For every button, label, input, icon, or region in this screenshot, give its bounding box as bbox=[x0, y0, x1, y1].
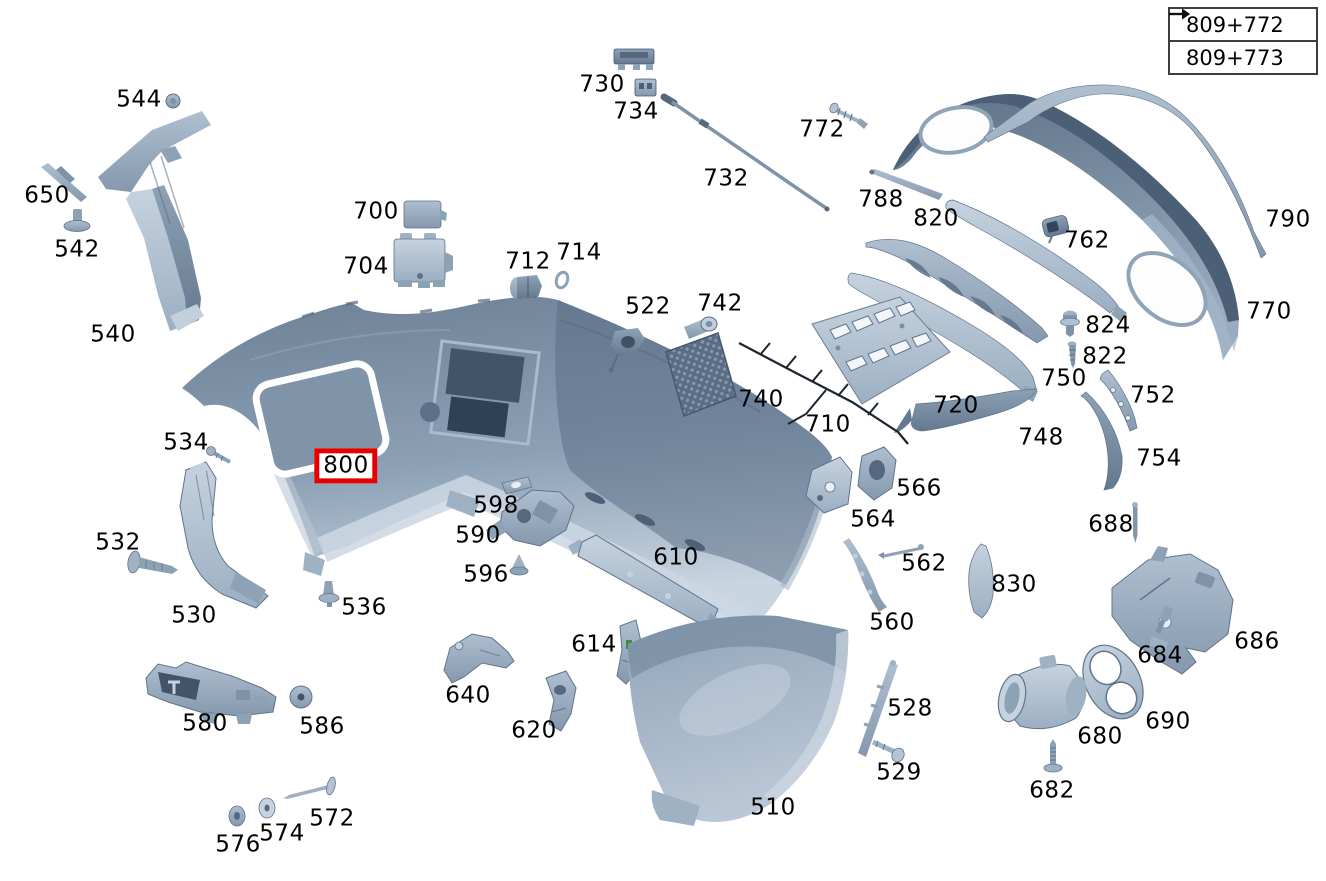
part-label-528[interactable]: 528 bbox=[887, 696, 932, 721]
part-label-522[interactable]: 522 bbox=[625, 294, 670, 319]
part-label-770[interactable]: 770 bbox=[1246, 299, 1291, 324]
part-label-574[interactable]: 574 bbox=[259, 821, 304, 846]
part-824-graphic[interactable] bbox=[1061, 311, 1080, 338]
part-label-510[interactable]: 510 bbox=[750, 795, 795, 820]
part-label-560[interactable]: 560 bbox=[869, 610, 914, 635]
part-label-712[interactable]: 712 bbox=[505, 249, 550, 274]
part-label-788[interactable]: 788 bbox=[858, 187, 903, 212]
part-label-704[interactable]: 704 bbox=[343, 254, 388, 279]
reference-links: 809+772 809+773 bbox=[1168, 7, 1318, 75]
part-label-700[interactable]: 700 bbox=[353, 199, 398, 224]
part-label-529[interactable]: 529 bbox=[876, 760, 921, 785]
arrow-right-icon bbox=[1168, 7, 1192, 21]
part-586-graphic[interactable] bbox=[290, 686, 312, 708]
reference-link-809-773[interactable]: 809+773 bbox=[1168, 40, 1318, 75]
part-label-680[interactable]: 680 bbox=[1077, 724, 1122, 749]
part-822-graphic[interactable] bbox=[1068, 342, 1077, 369]
part-label-754[interactable]: 754 bbox=[1136, 446, 1181, 471]
part-label-596[interactable]: 596 bbox=[463, 562, 508, 587]
part-510-graphic[interactable] bbox=[628, 616, 848, 826]
part-576-graphic[interactable] bbox=[229, 806, 245, 826]
part-label-800[interactable]: 800 bbox=[314, 448, 377, 483]
part-704-graphic[interactable] bbox=[394, 233, 453, 288]
part-label-772[interactable]: 772 bbox=[799, 117, 844, 142]
part-label-742[interactable]: 742 bbox=[697, 291, 742, 316]
part-label-790[interactable]: 790 bbox=[1265, 207, 1310, 232]
part-label-530[interactable]: 530 bbox=[171, 603, 216, 628]
part-label-714[interactable]: 714 bbox=[556, 240, 601, 265]
part-596-graphic[interactable] bbox=[510, 554, 528, 575]
part-730-graphic[interactable] bbox=[614, 49, 654, 70]
part-label-614[interactable]: 614 bbox=[571, 632, 616, 657]
part-label-576[interactable]: 576 bbox=[215, 832, 260, 857]
part-label-730[interactable]: 730 bbox=[579, 72, 624, 97]
part-574-graphic[interactable] bbox=[259, 798, 275, 818]
part-640-graphic[interactable] bbox=[444, 634, 514, 683]
part-712-graphic[interactable] bbox=[510, 275, 542, 299]
part-label-640[interactable]: 640 bbox=[445, 683, 490, 708]
part-540-graphic[interactable] bbox=[98, 111, 211, 331]
part-label-532[interactable]: 532 bbox=[95, 530, 140, 555]
part-label-566[interactable]: 566 bbox=[896, 476, 941, 501]
part-544-graphic[interactable] bbox=[166, 94, 180, 108]
part-label-586[interactable]: 586 bbox=[299, 714, 344, 739]
part-682-graphic[interactable] bbox=[1044, 739, 1062, 772]
part-label-822[interactable]: 822 bbox=[1082, 344, 1127, 369]
part-label-762[interactable]: 762 bbox=[1064, 228, 1109, 253]
part-label-686[interactable]: 686 bbox=[1234, 629, 1279, 654]
part-label-732[interactable]: 732 bbox=[703, 166, 748, 191]
part-label-590[interactable]: 590 bbox=[455, 523, 500, 548]
part-566-graphic[interactable] bbox=[858, 447, 896, 500]
part-label-830[interactable]: 830 bbox=[991, 572, 1036, 597]
reference-link-label: 809+773 bbox=[1186, 46, 1284, 70]
part-label-536[interactable]: 536 bbox=[341, 595, 386, 620]
part-560-graphic[interactable] bbox=[843, 538, 887, 612]
part-label-564[interactable]: 564 bbox=[850, 507, 895, 532]
part-label-610[interactable]: 610 bbox=[653, 545, 698, 570]
part-label-572[interactable]: 572 bbox=[309, 806, 354, 831]
part-label-534[interactable]: 534 bbox=[163, 430, 208, 455]
part-734-graphic[interactable] bbox=[635, 79, 656, 96]
part-label-542[interactable]: 542 bbox=[54, 237, 99, 262]
part-820-graphic[interactable] bbox=[946, 200, 1127, 322]
part-label-720[interactable]: 720 bbox=[933, 393, 978, 418]
part-label-734[interactable]: 734 bbox=[613, 99, 658, 124]
part-label-690[interactable]: 690 bbox=[1145, 709, 1190, 734]
part-label-562[interactable]: 562 bbox=[901, 551, 946, 576]
part-572-graphic[interactable] bbox=[283, 776, 337, 799]
part-label-740[interactable]: 740 bbox=[738, 387, 783, 412]
part-label-820[interactable]: 820 bbox=[913, 206, 958, 231]
part-label-598[interactable]: 598 bbox=[473, 493, 518, 518]
part-754-graphic[interactable] bbox=[1081, 392, 1122, 490]
part-530-graphic[interactable] bbox=[180, 462, 268, 608]
part-label-748[interactable]: 748 bbox=[1018, 425, 1063, 450]
part-536-graphic[interactable] bbox=[319, 581, 339, 607]
part-label-580[interactable]: 580 bbox=[182, 711, 227, 736]
part-534-graphic[interactable] bbox=[207, 447, 231, 463]
part-label-620[interactable]: 620 bbox=[511, 718, 556, 743]
part-542-graphic[interactable] bbox=[64, 209, 90, 232]
parts-diagram-page: 5446505425407007047127147307347327727888… bbox=[0, 0, 1326, 881]
part-830-graphic[interactable] bbox=[969, 544, 994, 618]
part-label-688[interactable]: 688 bbox=[1088, 512, 1133, 537]
part-714-graphic[interactable] bbox=[554, 271, 569, 290]
part-label-824[interactable]: 824 bbox=[1085, 313, 1130, 338]
part-label-710[interactable]: 710 bbox=[805, 412, 850, 437]
part-label-650[interactable]: 650 bbox=[24, 183, 69, 208]
part-label-750[interactable]: 750 bbox=[1041, 366, 1086, 391]
part-label-752[interactable]: 752 bbox=[1130, 383, 1175, 408]
part-label-540[interactable]: 540 bbox=[90, 322, 135, 347]
reference-link-label: 809+772 bbox=[1186, 13, 1284, 37]
part-732-graphic[interactable] bbox=[664, 97, 830, 212]
part-label-684[interactable]: 684 bbox=[1137, 643, 1182, 668]
part-680-graphic[interactable] bbox=[994, 655, 1089, 729]
part-label-682[interactable]: 682 bbox=[1029, 778, 1074, 803]
part-700-graphic[interactable] bbox=[404, 201, 447, 228]
part-label-544[interactable]: 544 bbox=[116, 87, 161, 112]
